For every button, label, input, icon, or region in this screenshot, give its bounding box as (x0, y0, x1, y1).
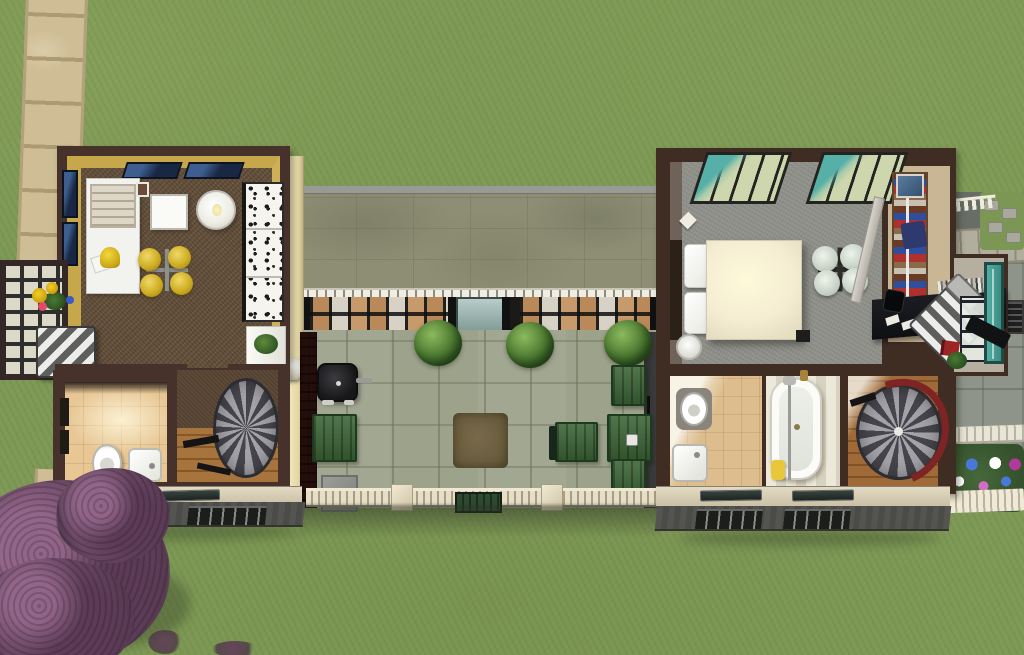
brass-fitting (800, 370, 808, 381)
garden-bench[interactable] (611, 365, 646, 406)
skylight-window[interactable] (121, 162, 183, 179)
potted-plant[interactable] (947, 352, 967, 369)
bed-foot-frame (796, 330, 810, 342)
lamp-shade (168, 246, 191, 269)
purple-shrub-tuft (212, 641, 258, 655)
wall-art[interactable] (136, 182, 149, 197)
wall-art[interactable] (896, 174, 924, 198)
wall-window[interactable] (62, 170, 78, 218)
shower-pole (788, 378, 791, 480)
grill-leg (344, 400, 354, 405)
green-deck-mat[interactable] (312, 414, 357, 462)
bathroom-wall-window (60, 430, 69, 454)
stepping-stone (988, 222, 1003, 233)
glass-window-wall (300, 297, 660, 331)
building-shadow (680, 530, 940, 546)
teal-door[interactable] (984, 262, 1004, 364)
purple-shrub-tuft (148, 630, 182, 654)
flat-stone-roof (300, 194, 660, 290)
shower-head (783, 376, 796, 385)
cushion-pile (900, 220, 927, 249)
potted-plant[interactable] (254, 334, 278, 354)
flower (38, 302, 47, 311)
toilet[interactable] (680, 392, 708, 426)
clerestory-window (162, 489, 220, 502)
door-post (502, 297, 510, 331)
square-dining-table[interactable] (150, 194, 188, 230)
sunflower (32, 288, 47, 303)
yellow-towel[interactable] (771, 460, 785, 480)
teal-skylight-window[interactable] (690, 152, 793, 204)
lamp-shade (170, 272, 193, 295)
bbq-grill[interactable] (317, 363, 358, 402)
double-bed[interactable] (706, 240, 802, 340)
lamp-shade (138, 248, 161, 271)
picnic-chair-table[interactable] (555, 422, 598, 462)
spiral-staircase[interactable] (213, 378, 279, 478)
clerestory-window (700, 489, 762, 501)
computer-monitor[interactable] (882, 288, 906, 313)
bathroom-sink[interactable] (672, 444, 708, 482)
awning-window-grid (783, 509, 851, 529)
fence-shadow (300, 505, 660, 537)
stepping-stone (1006, 232, 1021, 243)
skylight-window[interactable] (183, 162, 245, 179)
round-dining-table[interactable] (196, 190, 236, 230)
plum-tree-canopy (55, 468, 170, 563)
bathroom-wall-window (60, 398, 69, 426)
bed-headboard (670, 240, 682, 340)
potted-shrub[interactable] (506, 322, 554, 368)
round-bedside-table[interactable] (676, 334, 702, 360)
flower (66, 296, 74, 304)
clerestory-window (792, 489, 854, 501)
countertop-mixer[interactable] (100, 247, 120, 268)
grill-side-shelf (356, 378, 372, 383)
potted-shrub[interactable] (414, 320, 462, 366)
sunflower (46, 282, 58, 294)
awning-window-grid (695, 509, 763, 529)
yellow-ceiling-lamp[interactable] (138, 246, 196, 296)
stove[interactable] (90, 184, 136, 228)
desk-paper (885, 314, 900, 326)
scene-canvas (0, 0, 1024, 655)
patterned-loveseat[interactable] (242, 182, 284, 322)
flower-leaves (44, 292, 66, 310)
stair-hall (177, 370, 290, 494)
awning-roof (655, 506, 952, 531)
potted-shrub[interactable] (604, 320, 652, 366)
stepping-stone (1002, 208, 1017, 219)
sunflower-bouquet[interactable] (26, 282, 78, 322)
awning-window-grid (187, 506, 267, 525)
lamp-globe (814, 270, 840, 296)
lamp-globe (812, 246, 838, 272)
lamp-shade (140, 274, 163, 297)
dry-grass-patch (453, 413, 508, 468)
picnic-table[interactable] (607, 414, 652, 462)
grill-leg (322, 400, 334, 405)
